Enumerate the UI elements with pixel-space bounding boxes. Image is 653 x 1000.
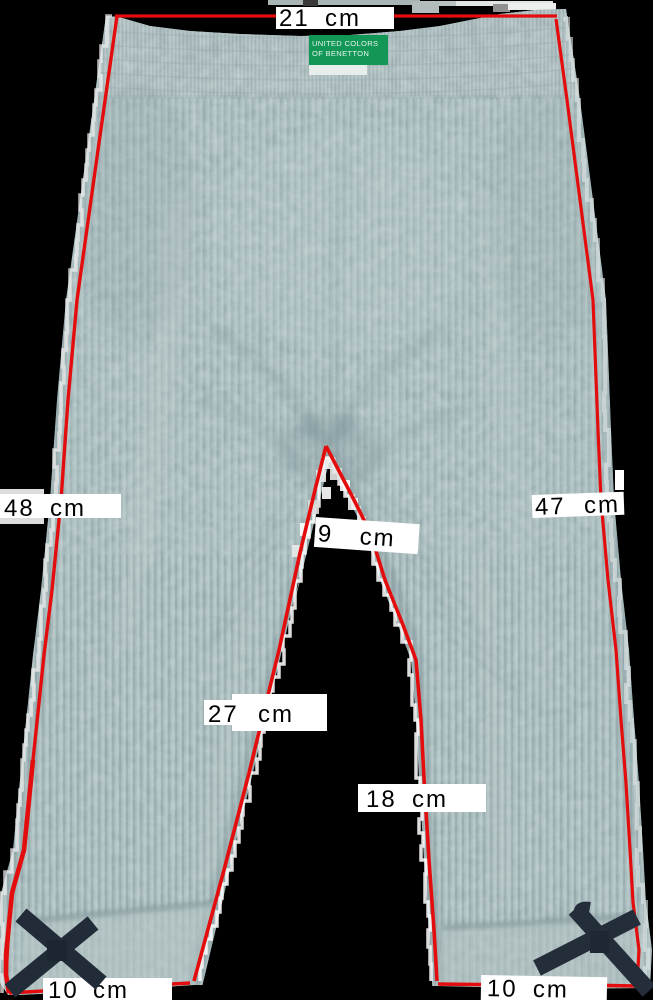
svg-text:cm: cm — [359, 523, 397, 552]
svg-text:cm: cm — [258, 701, 294, 728]
svg-text:cm: cm — [412, 786, 448, 813]
svg-text:cm: cm — [584, 491, 621, 519]
svg-text:18: 18 — [366, 786, 397, 813]
svg-text:9: 9 — [317, 520, 334, 548]
svg-text:cm: cm — [325, 5, 361, 32]
svg-text:10: 10 — [487, 975, 518, 1000]
svg-text:cm: cm — [50, 495, 86, 522]
svg-text:47: 47 — [535, 493, 567, 521]
svg-text:48: 48 — [4, 495, 35, 522]
svg-text:OF BENETTON: OF BENETTON — [312, 49, 369, 58]
svg-text:UNITED COLORS: UNITED COLORS — [312, 39, 378, 48]
svg-text:21: 21 — [279, 5, 310, 32]
svg-text:27: 27 — [208, 701, 239, 728]
svg-text:10: 10 — [48, 977, 79, 1000]
svg-text:cm: cm — [533, 976, 569, 1000]
